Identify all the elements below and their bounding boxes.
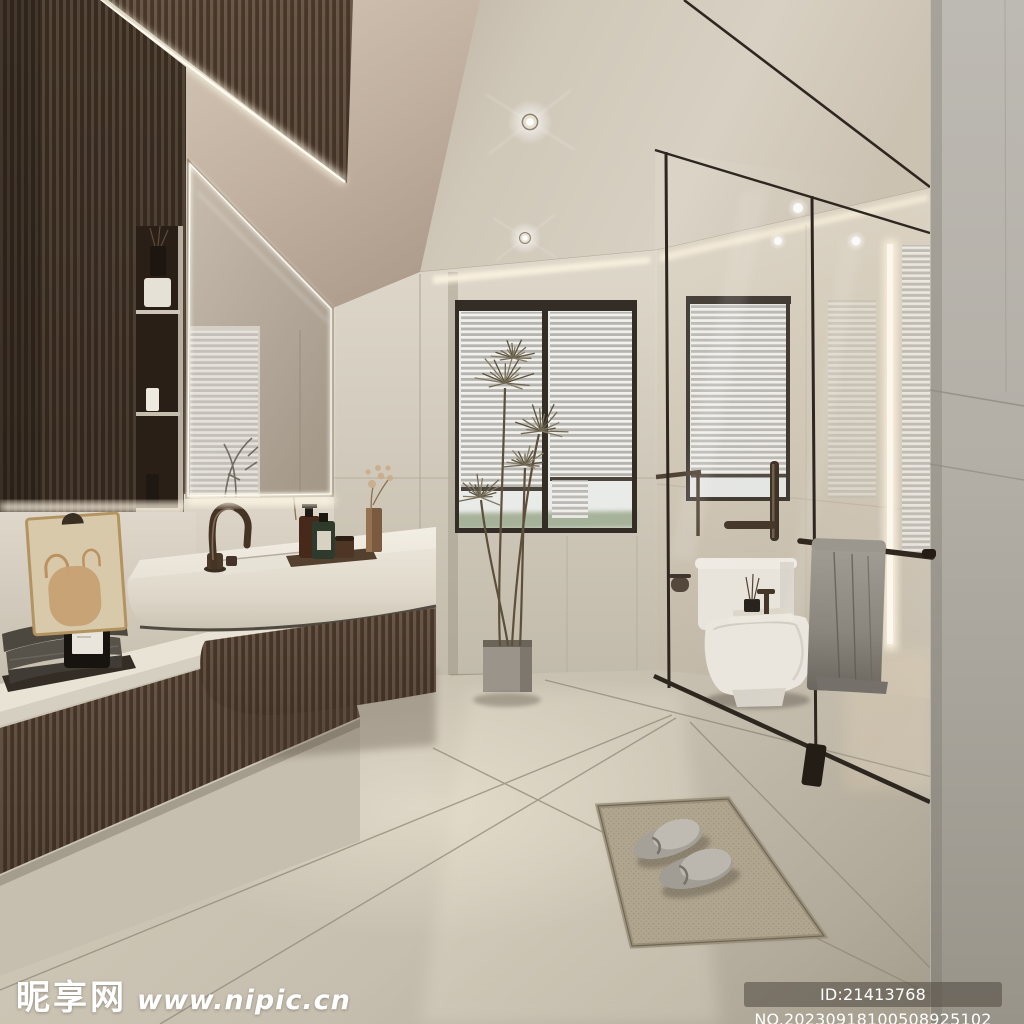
window-blinds-right	[550, 312, 632, 480]
mirror-under-glow	[186, 496, 334, 505]
shelf-cup	[146, 388, 159, 411]
watermark-site-name: 昵享网	[16, 970, 127, 1019]
shelf-bottle	[146, 474, 159, 507]
shelf-niche	[136, 226, 183, 514]
under-cabinet-light	[0, 503, 186, 511]
watermark-logo: 昵享网 www.nipic.cn	[16, 970, 351, 1019]
bathroom-photo: 昵享网 www.nipic.cn ID:21413768 NO.20230918…	[0, 0, 1024, 1024]
towel	[807, 538, 888, 694]
shelf-box	[144, 278, 171, 307]
artwork-frame	[26, 510, 126, 635]
bathroom-render	[0, 0, 1024, 1024]
wood-slat-wall	[0, 0, 186, 514]
watermark-id-badge: ID:21413768 NO.20230918100508925102	[744, 982, 1002, 1007]
plant-pot	[473, 640, 541, 707]
mirror-blinds-reflection	[190, 330, 258, 497]
window-blinds-left	[461, 312, 542, 490]
right-wall	[930, 0, 1024, 1024]
watermark-site-url: www.nipic.cn	[137, 985, 351, 1016]
